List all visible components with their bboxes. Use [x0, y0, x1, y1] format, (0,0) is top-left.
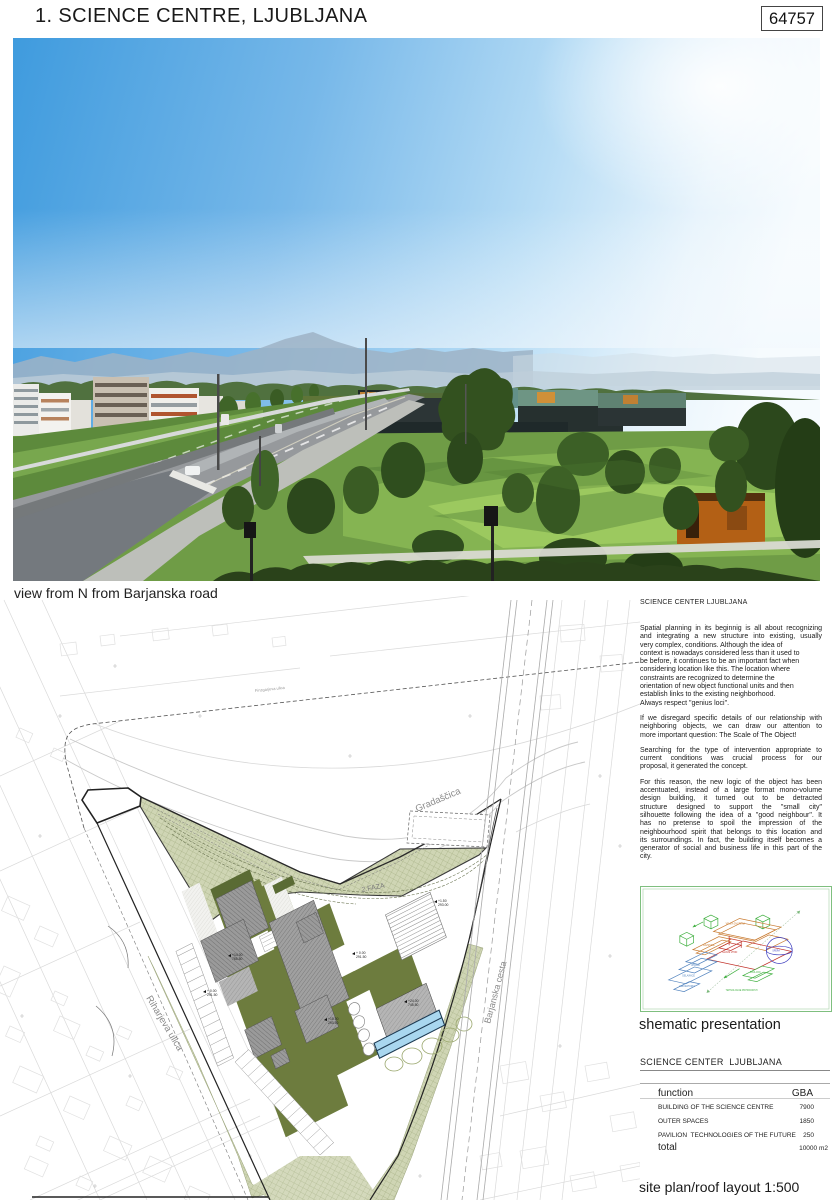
svg-text:RAZSTAVE: RAZSTAVE — [703, 944, 715, 947]
svg-text:SFERA: SFERA — [772, 949, 780, 952]
svg-text:Gradaščica: Gradaščica — [414, 786, 463, 815]
svg-text:293.00: 293.00 — [438, 903, 448, 907]
svg-text:PAVILJON: PAVILJON — [750, 971, 761, 974]
svg-text:Finzgarjeva ulica: Finzgarjeva ulica — [255, 685, 286, 693]
svg-text:293.50: 293.50 — [328, 1021, 338, 1025]
svg-text:291.50: 291.50 — [207, 993, 217, 997]
svg-text:LABORATORIJI: LABORATORIJI — [679, 985, 695, 988]
svg-text:DELAVNICE: DELAVNICE — [682, 974, 695, 977]
svg-text:GLAVNI VHOD: GLAVNI VHOD — [722, 951, 737, 954]
svg-text:UPRAVA: UPRAVA — [691, 964, 700, 967]
svg-text:745.50: 745.50 — [408, 1003, 418, 1007]
svg-text:TEHNOLOGIJE PRIHODNOSTI: TEHNOLOGIJE PRIHODNOSTI — [726, 990, 758, 992]
svg-text:291.50: 291.50 — [356, 955, 366, 959]
svg-text:765.50: 765.50 — [232, 957, 242, 961]
svg-text:VELIKA DVORANA: VELIKA DVORANA — [726, 923, 746, 926]
